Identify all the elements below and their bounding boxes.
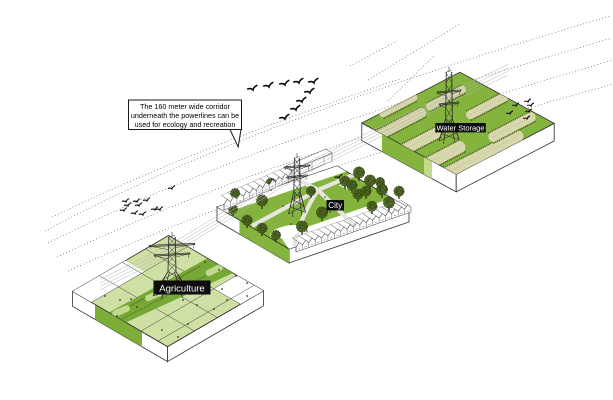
svg-text:Water Storage: Water Storage: [436, 124, 484, 133]
svg-text:used for ecology and recreatio: used for ecology and recreation: [135, 120, 236, 129]
svg-text:underneath the powerlines can: underneath the powerlines can be: [131, 111, 239, 120]
svg-text:City: City: [328, 201, 342, 210]
svg-text:The 160 meter wide corridor: The 160 meter wide corridor: [140, 102, 230, 111]
svg-text:Agriculture: Agriculture: [159, 283, 204, 294]
